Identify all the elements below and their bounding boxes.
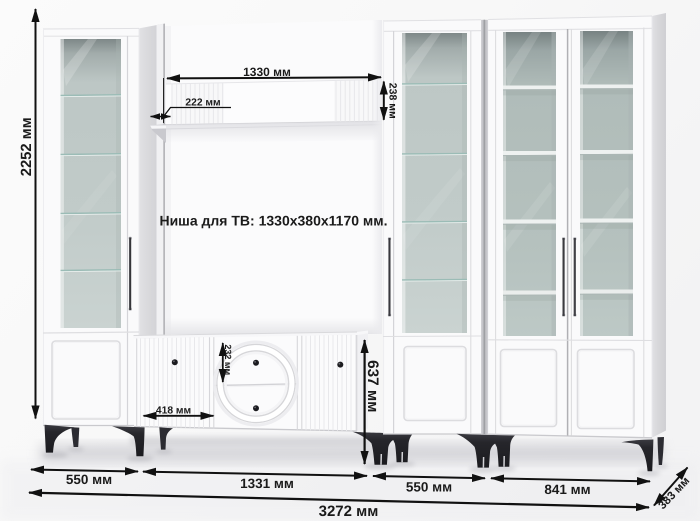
- svg-text:1330 мм: 1330 мм: [243, 65, 291, 79]
- svg-text:550 мм: 550 мм: [406, 480, 452, 495]
- svg-text:550 мм: 550 мм: [66, 472, 112, 487]
- svg-text:2252 мм: 2252 мм: [19, 117, 35, 176]
- svg-text:232 мм: 232 мм: [223, 344, 233, 375]
- svg-text:238 мм: 238 мм: [386, 83, 398, 119]
- svg-text:637 мм: 637 мм: [364, 360, 381, 412]
- svg-text:418 мм: 418 мм: [156, 406, 191, 417]
- svg-text:1331 мм: 1331 мм: [240, 476, 294, 491]
- svg-text:3272 мм: 3272 мм: [319, 503, 379, 520]
- svg-text:Ниша для ТВ: 1330x380x1170 мм.: Ниша для ТВ: 1330x380x1170 мм.: [159, 213, 387, 229]
- svg-text:841 мм: 841 мм: [544, 482, 590, 497]
